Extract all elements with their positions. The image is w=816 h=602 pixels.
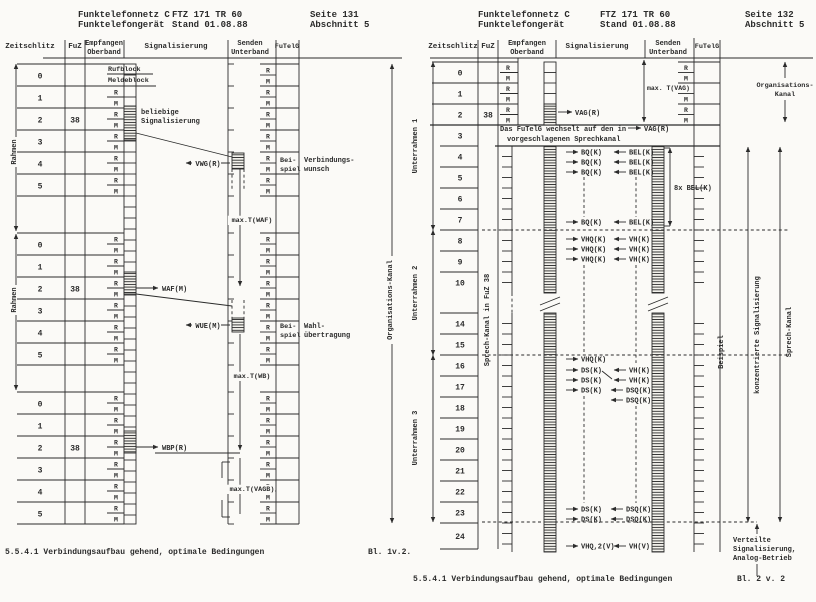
fuz-value: 38 [70,286,80,295]
rahmen-label: Rahmen [11,287,19,312]
rm-label: M [114,429,118,436]
timeslot-number: 3 [38,467,43,476]
rm-label: M [266,429,270,436]
signal-label: BQ(K) [581,150,602,158]
wue-block [232,318,244,332]
signal-label: BQ(K) [581,160,602,168]
signal-label: DS(K) [581,388,602,396]
rm-label: R [114,506,118,513]
rm-label: R [114,237,118,244]
doc-title-1: Funktelefonnetz C [478,10,570,20]
doc-ref: FTZ 171 TR 60 [172,10,242,20]
timeslot-number: 4 [38,161,43,170]
signal-label: DSQ(K) [626,517,651,525]
timeslot-number: 0 [38,242,43,251]
col-senden: Senden [655,40,680,48]
rm-label: R [684,65,688,72]
timeslot-number: 17 [455,384,465,393]
verteilte-label: Verteilte [733,537,771,545]
timeslot-number: 9 [458,259,463,268]
meldeblock-label: Meldeblock [108,77,149,85]
rm-label: M [114,292,118,299]
col-senden: Senden [237,40,262,48]
signal-label: VH(K) [629,378,650,386]
rm-label: R [114,178,118,185]
beispiel-label: Bei- [280,323,296,331]
col-signalisierung: Signalisierung [565,43,629,51]
signal-label: BEL(K) [629,220,654,228]
caption: 5.5.4.1 Verbindungsaufbau gehend, optima… [5,548,264,557]
unterrahmen-label: Unterrahmen 2 [412,266,420,321]
rm-label: R [684,107,688,114]
signal-label: DS(K) [581,378,602,386]
rm-label: R [114,325,118,332]
beispiel-label: spiel [280,332,300,340]
rm-label: M [266,473,270,480]
rm-label: R [266,281,270,288]
vwg-block [232,153,244,169]
sprechkanal-fuz-label: Sprech-Kanal in FuZ 38 [484,274,492,366]
rm-label: M [114,101,118,108]
rm-label: R [266,112,270,119]
signal-label: DS(K) [581,517,602,525]
rm-label: R [114,156,118,163]
wbp-burst [124,431,136,453]
unterrahmen-label: Unterrahmen 1 [412,119,420,174]
col-zeitschlitz: Zeitschlitz [428,43,478,51]
unterrahmen-label: Unterrahmen 3 [412,411,420,466]
beispiel-label: Bei- [280,157,296,165]
rm-label: M [684,76,688,83]
rm-label: R [266,347,270,354]
document-scan: Funktelefonnetz CFunktelefongerätFTZ 171… [0,0,816,602]
rm-label: M [114,495,118,502]
rm-label: M [266,495,270,502]
col-oberband: Oberband [87,49,121,57]
rm-label: M [114,473,118,480]
rm-label: R [266,303,270,310]
bel8-label: 8x BEL(K) [674,185,712,193]
tvagb-label: max.T(VAGB) [230,486,275,494]
rm-label: R [266,178,270,185]
col-empfangen: Empfangen [508,40,546,48]
page-number: Seite 131 [310,10,359,20]
senden-speech-strip [652,313,664,552]
wbp-label: WBP(R) [162,445,187,453]
rm-label: M [114,358,118,365]
signal-label: DS(K) [581,368,602,376]
doc-title-2: Funktelefongerät [78,20,164,30]
timeslot-number: 4 [458,154,463,163]
rahmen-label: Rahmen [11,139,19,164]
col-unterband: Unterband [231,49,269,57]
timeslot-number: 3 [458,133,463,142]
timeslot-number: 8 [458,238,463,247]
col-empfangen: Empfangen [85,40,123,48]
sheet-number: Bl. 1v.2. [368,548,411,557]
col-oberband: Oberband [510,49,544,57]
rm-label: R [266,68,270,75]
rm-label: M [266,407,270,414]
scan-svg: Funktelefonnetz CFunktelefongerätFTZ 171… [0,0,816,602]
timeslot-number: 15 [455,342,465,351]
timeslot-number: 4 [38,330,43,339]
rm-label: M [114,248,118,255]
rm-label: M [266,101,270,108]
timeslot-number: 5 [38,352,43,361]
timeslot-number: 7 [458,217,463,226]
col-fuz: FuZ [68,43,82,51]
rm-label: R [266,90,270,97]
timeslot-number: 3 [38,308,43,317]
organisationskanal-label: Organisations- [756,82,813,90]
rm-label: M [266,517,270,524]
rm-label: R [114,396,118,403]
timeslot-number: 0 [38,73,43,82]
page-number: Seite 132 [745,10,794,20]
rm-label: M [114,407,118,414]
rm-label: R [266,440,270,447]
rm-label: M [266,248,270,255]
diagonal-link [602,371,612,379]
rm-label: R [114,440,118,447]
rm-label: R [114,134,118,141]
channel-note: vorgeschlagenen Sprechkanal [507,136,620,144]
rm-label: R [266,134,270,141]
rm-label: R [506,86,510,93]
verbindungswunsch-label: Verbindungs- [304,157,354,165]
rm-label: M [114,270,118,277]
doc-date: Stand 01.08.88 [600,20,676,30]
rm-label: R [266,396,270,403]
tvag-label: max. T(VAG) [647,85,690,92]
rm-label: M [684,118,688,125]
twaf-label: max.T(WAF) [232,217,273,225]
verteilte-label: Analog-Betrieb [733,555,792,563]
doc-title-1: Funktelefonnetz C [78,10,170,20]
rm-label: R [266,156,270,163]
rm-label: M [266,358,270,365]
timeslot-number: 1 [38,264,43,273]
timeslot-number: 1 [458,91,463,100]
rm-label: M [266,451,270,458]
rm-label: R [114,462,118,469]
wahluebertragung-label: Wahl- [304,323,325,331]
rm-label: M [266,336,270,343]
signal-label: VHQ,2(V) [581,544,615,552]
timeslot-number: 1 [38,423,43,432]
rm-label: M [266,270,270,277]
timeslot-number: 5 [38,183,43,192]
beliebige-label: Signalisierung [141,118,200,126]
rm-label: M [114,145,118,152]
rm-label: R [506,107,510,114]
timeslot-number: 14 [455,321,465,330]
timeslot-number: 24 [455,533,465,542]
twb-label: max.T(WB) [234,373,271,381]
rm-label: M [114,314,118,321]
timeslot-number: 21 [455,468,465,477]
timeslot-number: 6 [458,196,463,205]
signal-label: BEL(K) [629,150,654,158]
rm-label: R [506,65,510,72]
fuz-value: 38 [70,445,80,454]
timeslot-number: 0 [458,70,463,79]
col-signalisierung: Signalisierung [144,43,208,51]
wahluebertragung-label: übertragung [304,332,350,340]
timeslot-number: 23 [455,510,465,519]
signal-label: VHQ(K) [581,357,606,365]
organisationskanal-label: Kanal [775,91,795,99]
rm-label: M [266,292,270,299]
empfangen-speech-strip [544,146,556,293]
signal-label: DSQ(K) [626,388,651,396]
rm-label: M [114,451,118,458]
rm-label: R [114,418,118,425]
rm-label: M [114,123,118,130]
rm-label: M [266,314,270,321]
rm-label: R [114,259,118,266]
rm-label: M [506,118,510,125]
signal-label: VHQ(K) [581,247,606,255]
timeslot-number: 5 [458,175,463,184]
doc-date: Stand 01.08.88 [172,20,248,30]
signal-label: VH(V) [629,544,650,552]
fuz-value: 38 [70,117,80,126]
rm-label: M [114,167,118,174]
timeslot-number: 10 [455,280,465,289]
rm-label: M [114,336,118,343]
timeslot-number: 18 [455,405,465,414]
timeslot-number: 2 [38,445,43,454]
section-number: Abschnitt 5 [310,20,369,30]
signal-label: VH(K) [629,237,650,245]
signal-label: VAG(R) [644,126,669,134]
signal-label: BEL(K) [629,160,654,168]
col-futelg: FuTelG [275,43,299,51]
signal-label: DS(K) [581,507,602,515]
beispiel-label: Beispiel [718,335,726,369]
waf-burst [124,272,136,294]
sprechkanal-label: Sprech-Kanal [786,307,794,357]
rm-label: R [266,325,270,332]
signal-label: BQ(K) [581,170,602,178]
timeslot-number: 2 [38,117,43,126]
rm-label: M [506,97,510,104]
rm-label: R [114,112,118,119]
signal-label: VHQ(K) [581,257,606,265]
timeslot-number: 3 [38,139,43,148]
beliebige-burst [124,106,136,140]
rm-label: R [114,303,118,310]
timeslot-number: 2 [38,286,43,295]
timeslot-number: 16 [455,363,465,372]
timeslot-number: 0 [38,401,43,410]
signal-label: VHQ(K) [581,237,606,245]
diagonal-link [136,133,232,157]
rm-label: R [114,281,118,288]
rm-label: R [114,347,118,354]
verteilte-label: Signalisierung, [733,546,796,554]
rm-label: R [266,462,270,469]
col-zeitschlitz: Zeitschlitz [5,43,55,51]
vwg-label: VWG(R) [195,161,220,169]
signal-label: DSQ(K) [626,507,651,515]
verbindungswunsch-label: wunsch [304,166,329,174]
rm-label: M [266,189,270,196]
signal-label: BEL(K) [629,170,654,178]
rm-label: M [114,517,118,524]
signal-label: VH(K) [629,368,650,376]
organisationskanal-label: Organisations-Kanal [387,260,395,340]
col-fuz: FuZ [481,43,495,51]
caption: 5.5.4.1 Verbindungsaufbau gehend, optima… [413,575,672,584]
rm-label: R [266,506,270,513]
signal-label: VH(K) [629,257,650,265]
rm-label: M [506,76,510,83]
signal-label: DSQ(K) [626,398,651,406]
timeslot-number: 1 [38,95,43,104]
fuz-value: 38 [483,112,493,121]
vag-burst [544,104,556,125]
timeslot-number: 5 [38,511,43,520]
beliebige-label: beliebige [141,109,179,117]
page-131-diagram: Funktelefonnetz CFunktelefongerätFTZ 171… [5,10,411,557]
timeslot-number: 20 [455,447,465,456]
page-132-diagram: Funktelefonnetz CFunktelefongerätFTZ 171… [412,10,814,584]
beispiel-label: spiel [280,166,300,174]
rm-label: M [266,167,270,174]
signal-label: VH(K) [629,247,650,255]
sheet-number: Bl. 2 v. 2 [737,575,785,584]
timeslot-number: 2 [458,112,463,121]
rm-label: M [266,79,270,86]
empfangen-speech-strip [544,313,556,552]
rm-label: R [266,418,270,425]
channel-note: Das FuTelG wechselt auf den in [500,126,626,134]
timeslot-number: 22 [455,489,465,498]
rm-label: M [266,145,270,152]
rm-label: M [114,189,118,196]
waf-label: WAF(M) [162,286,187,294]
rm-label: R [114,484,118,491]
signal-label: VAG(R) [575,110,600,118]
konzentrierte-label: konzentrierte Signalisierung [754,276,762,394]
rm-label: M [266,123,270,130]
rm-label: R [266,237,270,244]
col-unterband: Unterband [649,49,687,57]
timeslot-number: 4 [38,489,43,498]
doc-title-2: Funktelefongerät [478,20,564,30]
wue-label: WUE(M) [195,323,220,331]
rm-label: R [114,90,118,97]
rm-label: R [266,259,270,266]
section-number: Abschnitt 5 [745,20,804,30]
doc-ref: FTZ 171 TR 60 [600,10,670,20]
col-futelg: FuTelG [695,43,719,51]
rm-label: M [684,97,688,104]
signal-label: BQ(K) [581,220,602,228]
timeslot-number: 19 [455,426,465,435]
diagonal-link [136,294,232,306]
